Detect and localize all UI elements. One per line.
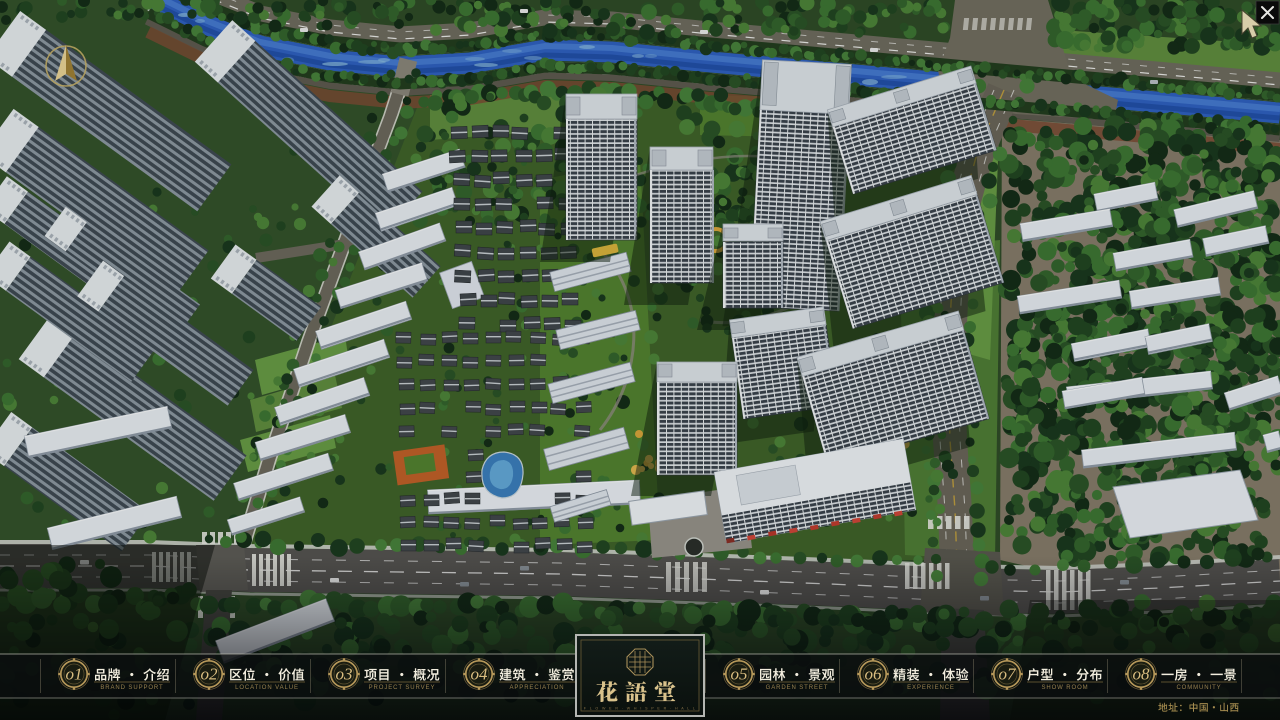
- svg-text:o2: o2: [201, 665, 219, 684]
- svg-text:o5: o5: [731, 665, 748, 684]
- svg-text:COMMUNITY: COMMUNITY: [1176, 685, 1221, 691]
- svg-text:o1: o1: [66, 665, 83, 684]
- svg-text:o6: o6: [865, 665, 883, 684]
- svg-text:BRAND SUPPORT: BRAND SUPPORT: [100, 685, 163, 691]
- svg-text:GARDEN STREET: GARDEN STREET: [766, 685, 829, 691]
- svg-text:LOCATION VALUE: LOCATION VALUE: [235, 685, 299, 691]
- svg-text:PROJECT SURVEY: PROJECT SURVEY: [369, 685, 436, 691]
- svg-text:SHOW ROOM: SHOW ROOM: [1041, 685, 1088, 691]
- svg-text:o7: o7: [999, 665, 1018, 684]
- svg-text:APPRECIATION: APPRECIATION: [509, 685, 564, 691]
- svg-text:o8: o8: [1133, 665, 1151, 684]
- svg-text:o4: o4: [471, 665, 489, 684]
- svg-text:EXPERIENCE: EXPERIENCE: [907, 685, 955, 691]
- svg-text:F L O W E R · W H I S P E R ·: F L O W E R · W H I S P E R · H A L L: [584, 707, 697, 711]
- svg-text:o3: o3: [336, 665, 353, 684]
